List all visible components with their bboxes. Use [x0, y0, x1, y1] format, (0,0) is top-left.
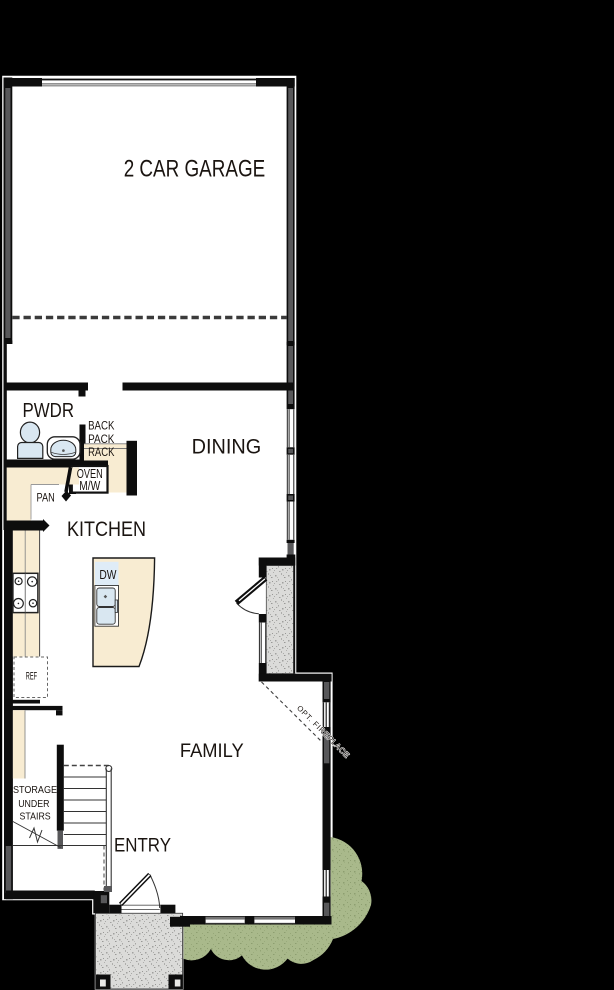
- svg-text:PACK: PACK: [88, 432, 114, 446]
- svg-text:M/W: M/W: [79, 479, 100, 493]
- svg-text:STORAGE: STORAGE: [13, 784, 57, 796]
- svg-text:FAMILY: FAMILY: [180, 741, 244, 762]
- svg-text:DW: DW: [99, 567, 117, 582]
- svg-text:2 CAR GARAGE: 2 CAR GARAGE: [124, 155, 266, 182]
- svg-text:REF: REF: [26, 670, 37, 682]
- svg-text:RACK: RACK: [88, 445, 114, 459]
- svg-text:KITCHEN: KITCHEN: [67, 517, 146, 541]
- svg-text:DINING: DINING: [192, 436, 262, 459]
- svg-text:PWDR: PWDR: [23, 399, 75, 422]
- svg-text:BACK: BACK: [88, 419, 114, 433]
- svg-text:STAIRS: STAIRS: [20, 811, 51, 823]
- svg-text:UNDER: UNDER: [18, 798, 50, 810]
- svg-text:PAN: PAN: [37, 491, 55, 505]
- svg-text:ENTRY: ENTRY: [114, 836, 171, 857]
